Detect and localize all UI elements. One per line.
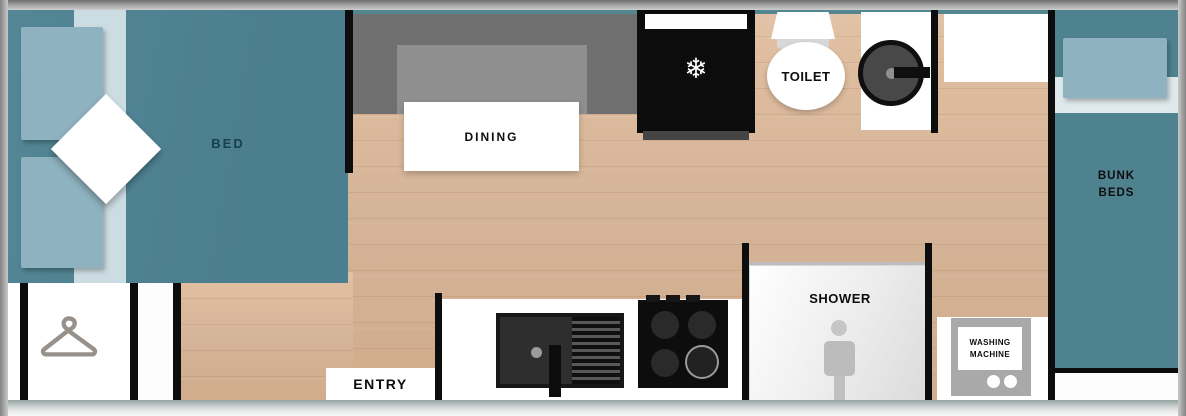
- sink: [496, 313, 624, 388]
- bed-zone: BED: [8, 10, 348, 283]
- wall-wardrobe-left: [20, 283, 28, 400]
- stove-knob: [646, 295, 660, 302]
- stove: [638, 300, 728, 388]
- bunk-pillow: [1063, 38, 1167, 98]
- bunk-beds-label: BUNK BEDS: [1055, 168, 1178, 201]
- wall-corridor: [173, 283, 181, 400]
- bunk-zone: BUNK BEDS: [1055, 10, 1178, 368]
- wall-bed-right: [345, 10, 353, 173]
- bed-label: BED: [148, 136, 308, 151]
- entry-marker: ENTRY: [326, 368, 435, 400]
- floorplan: BED DINING ❄ TOILET: [8, 10, 1178, 400]
- toilet-bowl: TOILET: [767, 42, 845, 110]
- bunk-label-line1: BUNK: [1055, 168, 1178, 185]
- stove-burner: [688, 311, 716, 339]
- snowflake-icon: ❄: [637, 10, 755, 126]
- plan-edge-top: [0, 0, 1186, 10]
- washing-machine-knob: [987, 375, 1000, 388]
- stove-knob: [666, 295, 680, 302]
- fridge: ❄: [637, 10, 755, 133]
- shower-person-body: [824, 341, 855, 376]
- hanger-icon: [38, 309, 100, 361]
- shower-person-head-icon: [831, 320, 847, 336]
- toilet-label: TOILET: [782, 69, 831, 84]
- dining-label: DINING: [465, 130, 519, 144]
- washing-machine: WASHING MACHINE: [951, 318, 1031, 396]
- washing-machine-label-line1: WASHING: [969, 337, 1010, 348]
- washing-machine-label-line2: MACHINE: [970, 349, 1010, 360]
- wall-wardrobe-right: [130, 283, 138, 400]
- sink-faucet: [549, 345, 561, 397]
- plan-edge-bottom: [0, 400, 1186, 416]
- stove-burner: [651, 311, 679, 339]
- toilet-tank: [771, 12, 835, 39]
- wall-shower-right: [925, 243, 932, 400]
- stove-burner: [651, 349, 679, 377]
- washing-machine-knob: [1004, 375, 1017, 388]
- counter-top-right: [944, 14, 1048, 82]
- wall-kitchen-left: [435, 293, 442, 400]
- stove-knob: [686, 295, 700, 302]
- sink-drain: [531, 347, 542, 358]
- wall-bunk: [1048, 10, 1055, 400]
- floorplan-image: BED DINING ❄ TOILET: [0, 0, 1186, 416]
- shower-zone: SHOWER: [749, 262, 931, 400]
- wall-bathroom: [931, 10, 938, 133]
- stove-burner-ringed: [685, 345, 719, 379]
- wall-shower-left: [742, 243, 749, 400]
- entry-label: ENTRY: [353, 376, 407, 392]
- fridge-base-shadow: [643, 131, 749, 140]
- bunk-foot-wall: [1055, 368, 1178, 373]
- dining-table: DINING: [404, 102, 579, 171]
- bunk-label-line2: BEDS: [1055, 185, 1178, 202]
- plan-edge-right: [1178, 0, 1186, 416]
- shower-label: SHOWER: [749, 291, 931, 306]
- washing-machine-panel: WASHING MACHINE: [958, 327, 1022, 370]
- plan-edge-left: [0, 0, 8, 416]
- basin-tap: [894, 67, 930, 78]
- sink-drainboard: [572, 317, 620, 384]
